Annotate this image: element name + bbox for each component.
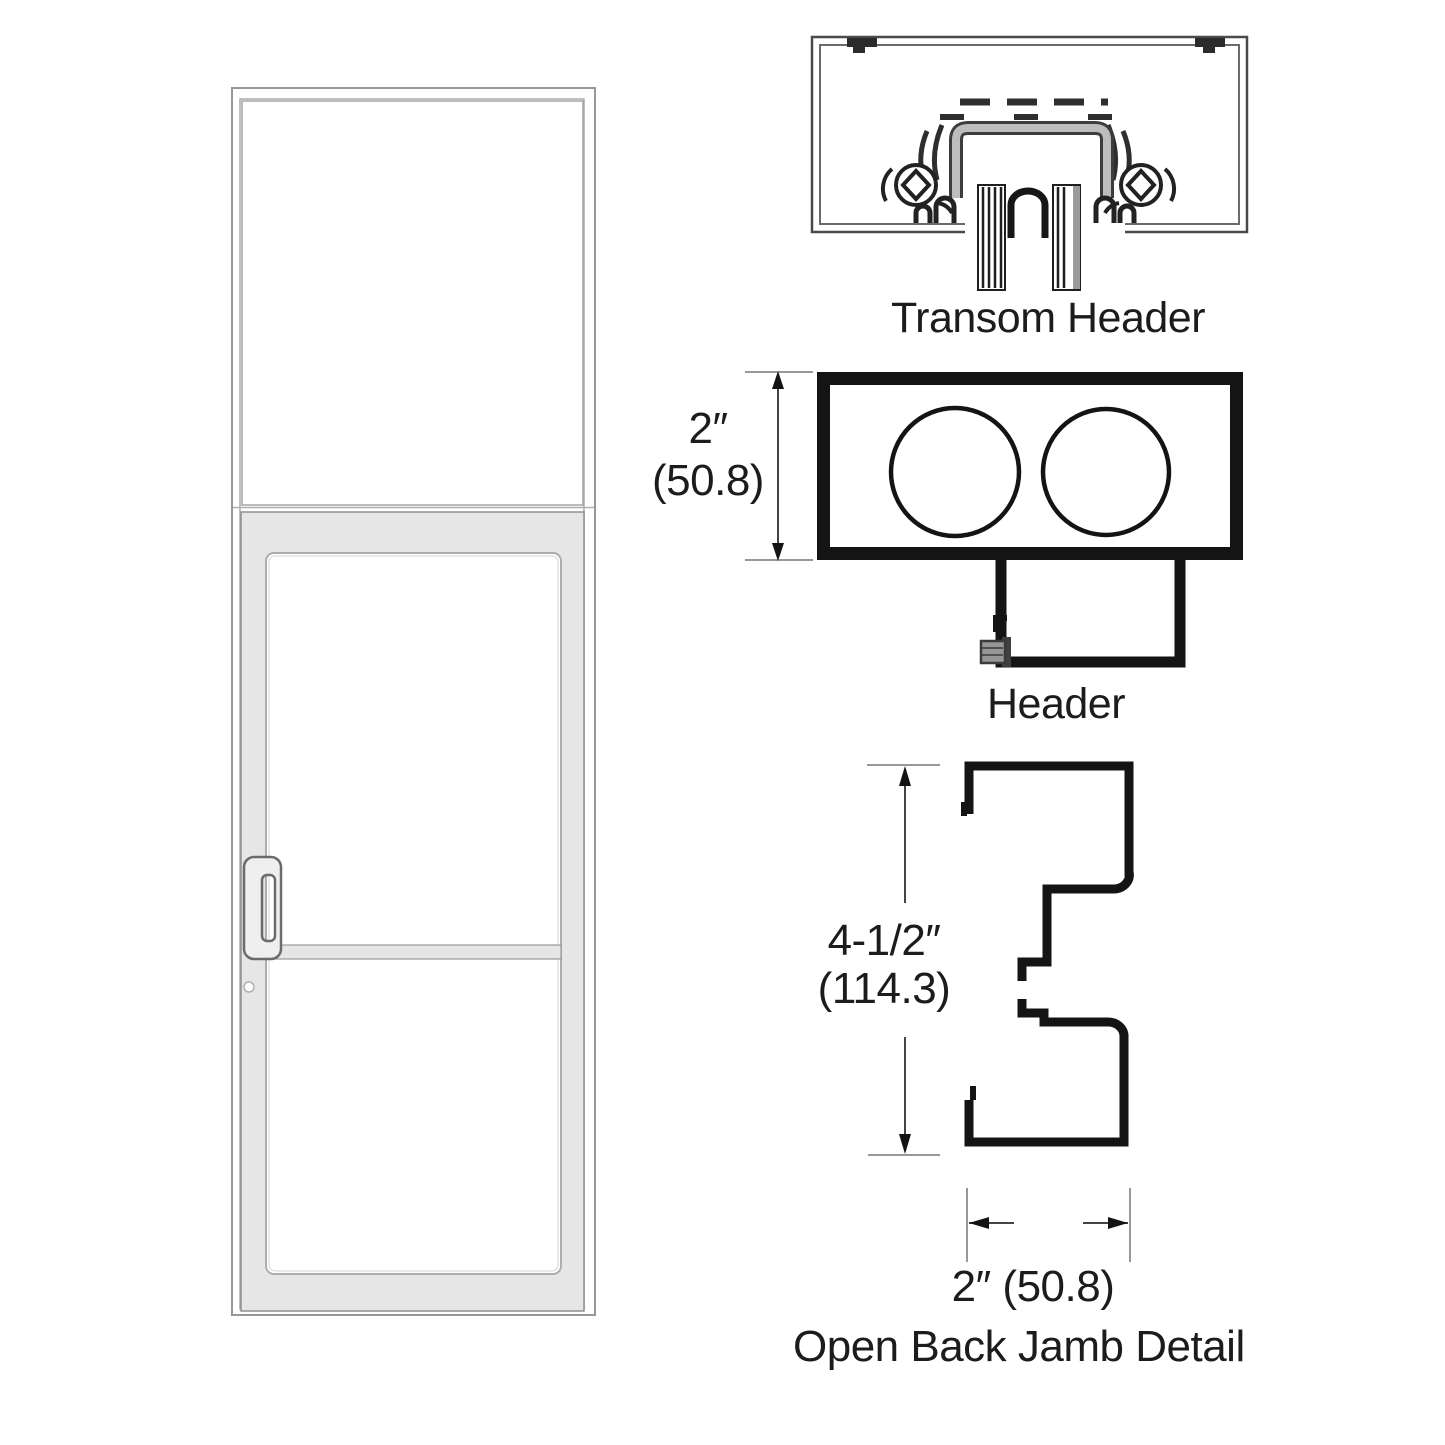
- transom-glass-panel: [242, 101, 583, 505]
- jamb-height-mm: (114.3): [784, 966, 984, 1012]
- transom-header-label: Transom Header: [848, 296, 1248, 341]
- header-stop-channel: [1001, 560, 1180, 662]
- header-glazing-clip: [981, 637, 1011, 667]
- jamb-extension-lines: [867, 765, 1130, 1262]
- jamb-width-dimension: [969, 1217, 1128, 1229]
- product-diagram-canvas: Transom Header 2″ (50.8) Header 4-1/2″ (…: [0, 0, 1445, 1445]
- screw-race-right: [1043, 409, 1169, 535]
- mullion-post-left: [978, 185, 1005, 290]
- cylinder-lock: [244, 982, 254, 992]
- header-height-inches: 2″: [608, 406, 808, 452]
- header-tube: [824, 379, 1237, 554]
- door-elevation-figure: [208, 78, 608, 1328]
- door-glass: [266, 553, 561, 1274]
- header-label: Header: [956, 682, 1156, 727]
- open-back-jamb-detail-label: Open Back Jamb Detail: [793, 1324, 1243, 1370]
- door-mid-rail: [266, 945, 561, 959]
- jamb-profile: [964, 766, 1129, 1142]
- mullion-post-right: [1053, 185, 1080, 290]
- jamb-width-dimension-text: 2″ (50.8): [933, 1264, 1133, 1310]
- transom-header-section-figure: [790, 25, 1260, 305]
- jamb-height-inches: 4-1/2″: [784, 918, 984, 964]
- door-pull-handle: [244, 857, 281, 959]
- mullion-arch: [1011, 191, 1045, 238]
- screw-race-left: [891, 408, 1019, 536]
- header-height-mm: (50.8): [608, 458, 808, 504]
